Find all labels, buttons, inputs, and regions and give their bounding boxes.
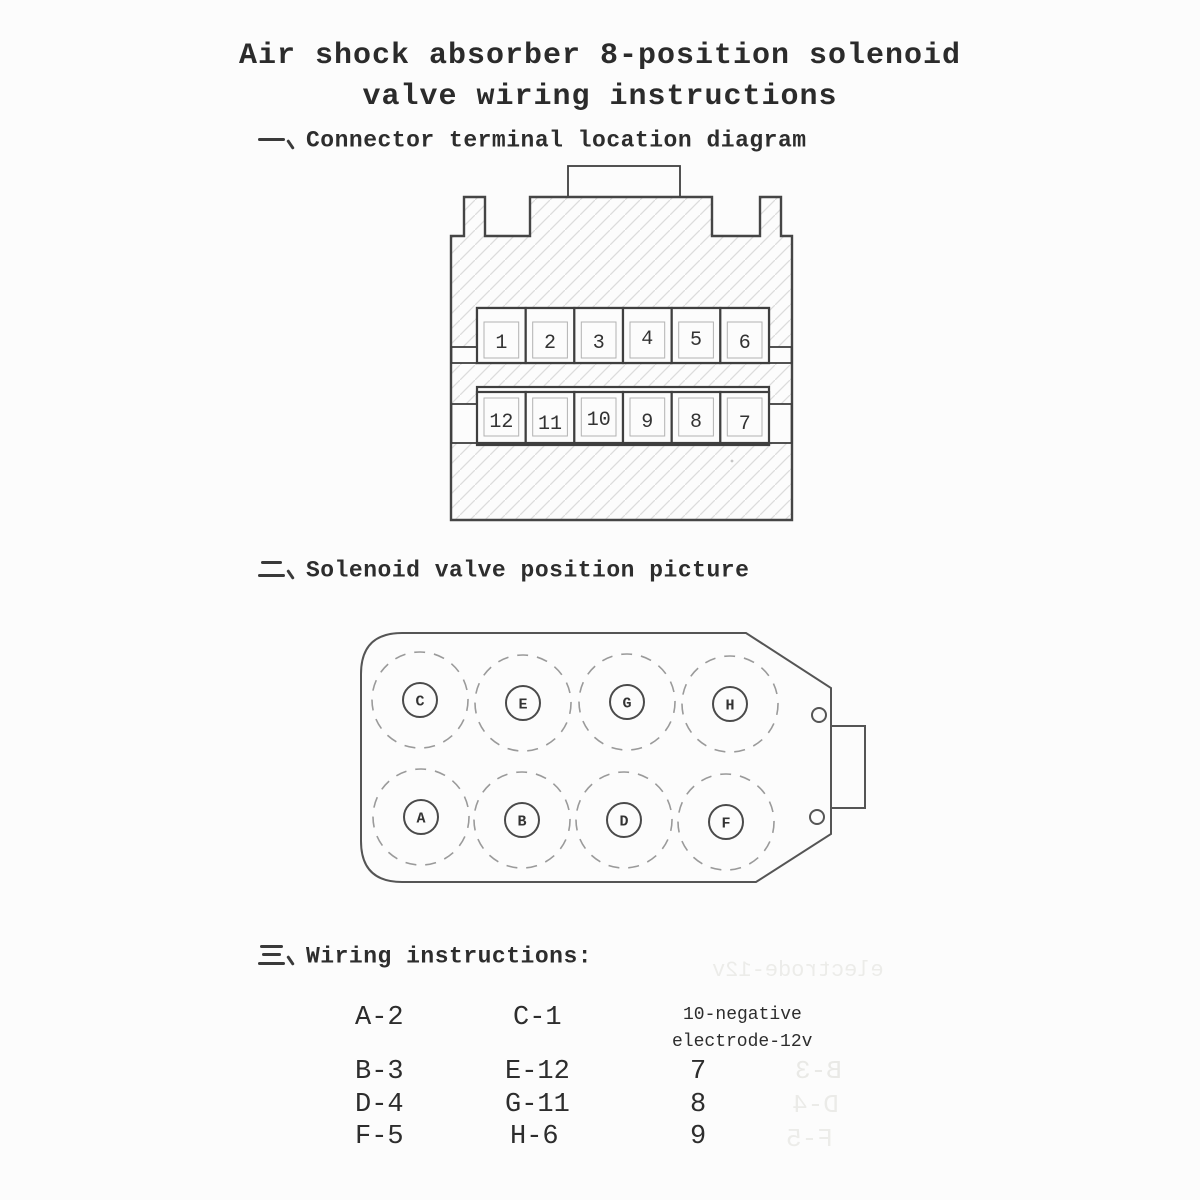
side-notch-left-bottom: [452, 404, 478, 443]
terminal-box-12: 12: [477, 392, 526, 443]
wiring-item-7: 7: [690, 1058, 706, 1088]
terminal-number: 1: [495, 332, 507, 355]
valve-letter: H: [725, 698, 734, 715]
wiring-item-h6: H-6: [510, 1123, 559, 1153]
terminal-number: 2: [544, 332, 556, 355]
wiring-item-c1: C-1: [513, 1004, 562, 1034]
valve-mounting-tab: [831, 726, 865, 808]
valve-letter: C: [415, 694, 424, 711]
scan-speck: [731, 460, 734, 463]
terminal-number: 5: [690, 329, 702, 352]
connector-terminal-diagram: 1 2 3 4 5: [445, 155, 805, 530]
side-notch-right-top: [769, 347, 792, 363]
terminal-box-11: 11: [526, 392, 575, 443]
wiring-item-b3: B-3: [355, 1058, 404, 1088]
valve-letter: G: [622, 696, 631, 713]
wiring-item-8: 8: [690, 1091, 706, 1121]
cjk-numeral-one-marker: [258, 127, 298, 154]
terminal-box-9: 9: [623, 392, 672, 443]
wiring-item-a2: A-2: [355, 1004, 404, 1034]
terminal-number: 12: [489, 411, 513, 434]
valve-letter: A: [416, 811, 425, 828]
valve-letter: D: [619, 814, 628, 831]
terminal-number: 6: [739, 332, 751, 355]
wiring-negative-electrode-line1: 10-negative: [683, 1006, 802, 1026]
terminal-box-1: 1: [477, 308, 526, 363]
wiring-item-d4: D-4: [355, 1091, 404, 1121]
scanned-instruction-page: Air shock absorber 8-position solenoid v…: [0, 0, 1200, 1200]
connector-latch-tab: [568, 166, 680, 197]
terminal-box-6: 6: [720, 308, 769, 363]
section-3-label: Wiring instructions:: [306, 944, 592, 970]
terminal-box-5: 5: [672, 308, 721, 363]
bleedthrough-ghost-text: electrode-12v: [712, 958, 884, 983]
section-heading-wiring: Wiring instructions:: [258, 943, 592, 970]
title-line-2: valve wiring instructions: [0, 77, 1200, 118]
terminal-number: 9: [641, 411, 653, 434]
page-title: Air shock absorber 8-position solenoid v…: [0, 36, 1200, 118]
wiring-item-e12: E-12: [505, 1058, 570, 1088]
terminal-number: 8: [690, 411, 702, 434]
valve-letter: E: [518, 697, 527, 714]
terminal-box-8: 8: [672, 392, 721, 443]
terminal-row-bottom: 12 11 10 9 8: [477, 392, 769, 443]
bleedthrough-ghost-text: B-3: [795, 1056, 842, 1086]
terminal-number: 4: [641, 328, 653, 351]
bleedthrough-ghost-text: F-5: [786, 1124, 833, 1154]
wiring-item-g11: G-11: [505, 1091, 570, 1121]
wiring-item-9: 9: [690, 1123, 706, 1153]
side-notch-right-bottom: [769, 404, 792, 443]
terminal-number: 11: [538, 413, 562, 436]
terminal-box-3: 3: [574, 308, 623, 363]
wiring-negative-electrode-line2: electrode-12v: [672, 1033, 812, 1053]
bleedthrough-ghost-text: D-4: [792, 1090, 839, 1120]
terminal-number: 7: [739, 413, 751, 436]
cjk-numeral-three-marker: [258, 943, 298, 970]
solenoid-valve-diagram: C E G H A: [350, 620, 895, 900]
terminal-box-4: 4: [623, 308, 672, 363]
terminal-box-7: 7: [720, 392, 769, 443]
side-notch-left-top: [452, 347, 478, 363]
terminal-box-2: 2: [526, 308, 575, 363]
wiring-item-f5: F-5: [355, 1123, 404, 1153]
terminal-box-10: 10: [574, 392, 623, 443]
title-line-1: Air shock absorber 8-position solenoid: [0, 36, 1200, 77]
section-2-label: Solenoid valve position picture: [306, 558, 749, 584]
section-1-label: Connector terminal location diagram: [306, 128, 807, 154]
terminal-row-top: 1 2 3 4 5: [477, 308, 769, 363]
section-heading-connector: Connector terminal location diagram: [258, 127, 807, 154]
terminal-number: 3: [593, 332, 605, 355]
valve-letter: F: [721, 816, 730, 833]
section-heading-valve: Solenoid valve position picture: [258, 557, 749, 584]
terminal-number: 10: [587, 409, 611, 432]
valve-letter: B: [517, 814, 526, 831]
valve-body-outline: [361, 633, 831, 882]
cjk-numeral-two-marker: [258, 557, 298, 584]
